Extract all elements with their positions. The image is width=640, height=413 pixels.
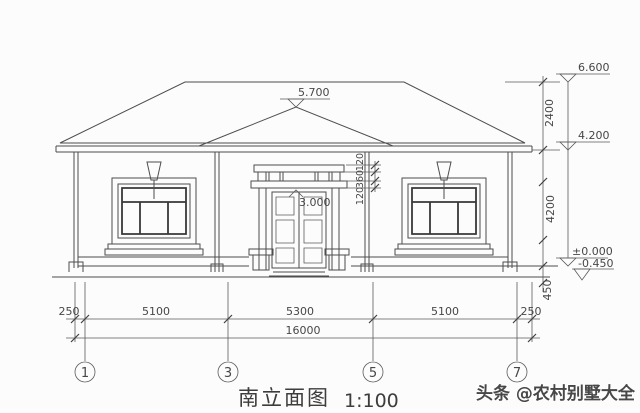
dim-storey-height: 4200 [544, 195, 557, 223]
dim-bay-3-5: 5300 [286, 305, 314, 318]
level-marker-door-head: 3.000 [289, 190, 331, 209]
svg-text:5: 5 [369, 366, 377, 381]
svg-text:3: 3 [224, 366, 232, 381]
dim-total-width: 16000 [286, 324, 321, 337]
dim-left-overhang: 250 [59, 305, 80, 318]
walls [69, 152, 558, 272]
level-ridge-value: 6.600 [578, 61, 610, 74]
level-marker-ridge: 6.600 [556, 61, 610, 82]
level-triangle-icon [288, 99, 304, 107]
drawing-title: 南立面图 [238, 386, 330, 410]
porch-gable [199, 107, 393, 146]
title-block: 南立面图 1:100 [238, 386, 399, 412]
left-pedestal-cap [249, 249, 273, 255]
right-level-markers: 6.600 4.200 ±0.000 -0.450 [505, 61, 614, 280]
level-triangle-icon [574, 269, 590, 280]
window-sill [398, 244, 490, 249]
dim-plinth-height: 450 [541, 280, 554, 301]
entrance-steps [269, 268, 329, 276]
canopy-band [258, 172, 340, 181]
svg-text:1: 1 [81, 366, 89, 381]
svg-text:7: 7 [513, 366, 521, 381]
main-roof [56, 82, 532, 152]
dim-right-overhang: 250 [521, 305, 542, 318]
right-dim-chain: 2400 4200 450 [539, 76, 557, 301]
level-triangle-icon [560, 258, 576, 266]
level-marker-ground: -0.450 [572, 257, 614, 280]
svg-text:360: 360 [355, 170, 366, 188]
keystone-ornament [147, 162, 161, 180]
level-marker-porch-peak: 5.700 [280, 86, 330, 107]
drawing-scale: 1:100 [344, 390, 399, 412]
dim-roof-height: 2400 [543, 99, 556, 127]
canopy-top-slab [254, 165, 344, 172]
south-elevation-drawing: 5.700 [0, 0, 640, 413]
bottom-dims: 250 5100 5300 5100 250 16000 [59, 282, 542, 361]
canopy-bottom-slab [251, 181, 347, 188]
svg-text:120: 120 [355, 153, 366, 171]
level-door-head-value: 3.000 [299, 196, 331, 209]
grid-bubbles: 1 3 5 7 [75, 362, 527, 382]
right-window [395, 162, 493, 255]
dim-bay-5-7: 5100 [431, 305, 459, 318]
svg-text:120: 120 [355, 187, 366, 205]
watermark-text: 头条 @农村别墅大全 [476, 383, 636, 404]
dim-bay-1-3: 5100 [142, 305, 170, 318]
right-pedestal-cap [325, 249, 349, 255]
level-eaves-value: 4.200 [578, 129, 610, 142]
level-ground-value: -0.450 [578, 257, 613, 270]
level-porch-peak-value: 5.700 [298, 86, 330, 99]
entrance [249, 165, 349, 276]
keystone-ornament [437, 162, 451, 180]
elevation-sheet: 5.700 [0, 0, 640, 413]
window-sill [108, 244, 200, 249]
canopy-dim-chain: 120 360 120 [344, 153, 381, 205]
left-window [105, 162, 203, 255]
level-marker-eaves: 4.200 [556, 129, 610, 150]
level-triangle-icon [560, 74, 576, 82]
